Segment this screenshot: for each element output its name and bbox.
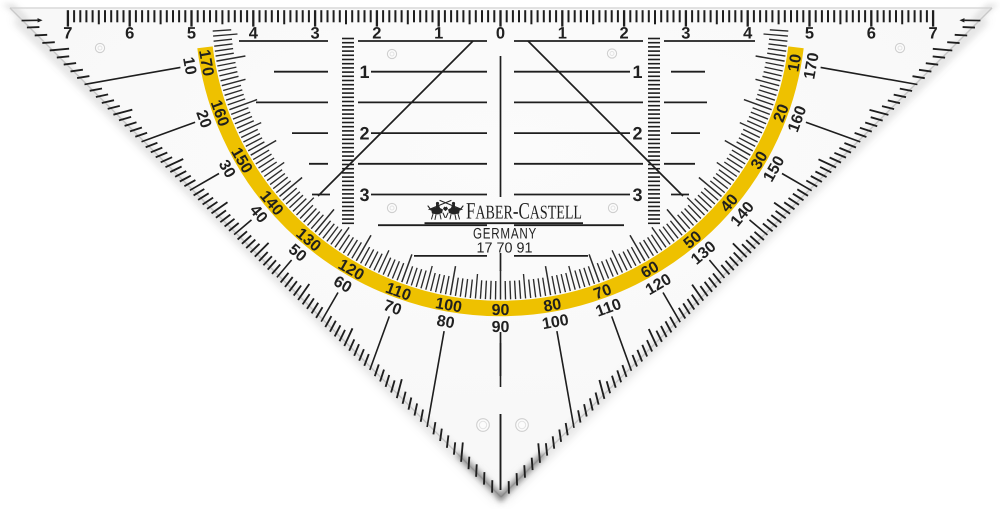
svg-text:FABER-CASTELL: FABER-CASTELL [466,199,582,225]
svg-text:2: 2 [359,123,369,143]
svg-text:1: 1 [359,62,369,82]
svg-text:6: 6 [867,24,876,42]
svg-text:3: 3 [632,185,642,205]
svg-text:0: 0 [496,24,505,42]
svg-text:2: 2 [620,24,629,42]
svg-text:2: 2 [632,123,642,143]
svg-text:1: 1 [632,62,642,82]
svg-text:80: 80 [435,313,456,333]
svg-text:6: 6 [125,24,134,42]
svg-text:1: 1 [558,24,567,42]
svg-text:4: 4 [249,24,259,42]
svg-text:5: 5 [805,24,814,42]
svg-text:90: 90 [492,302,510,319]
svg-text:7: 7 [63,24,72,42]
svg-text:3: 3 [681,24,690,42]
svg-text:3: 3 [359,185,369,205]
svg-text:7: 7 [929,24,938,42]
svg-text:17 70 91: 17 70 91 [477,241,533,257]
svg-text:1: 1 [434,24,443,42]
svg-text:2: 2 [372,24,381,42]
svg-text:3: 3 [311,24,320,42]
svg-text:10: 10 [179,56,199,77]
svg-text:4: 4 [743,24,753,42]
svg-text:90: 90 [492,319,510,336]
svg-text:5: 5 [187,24,196,42]
